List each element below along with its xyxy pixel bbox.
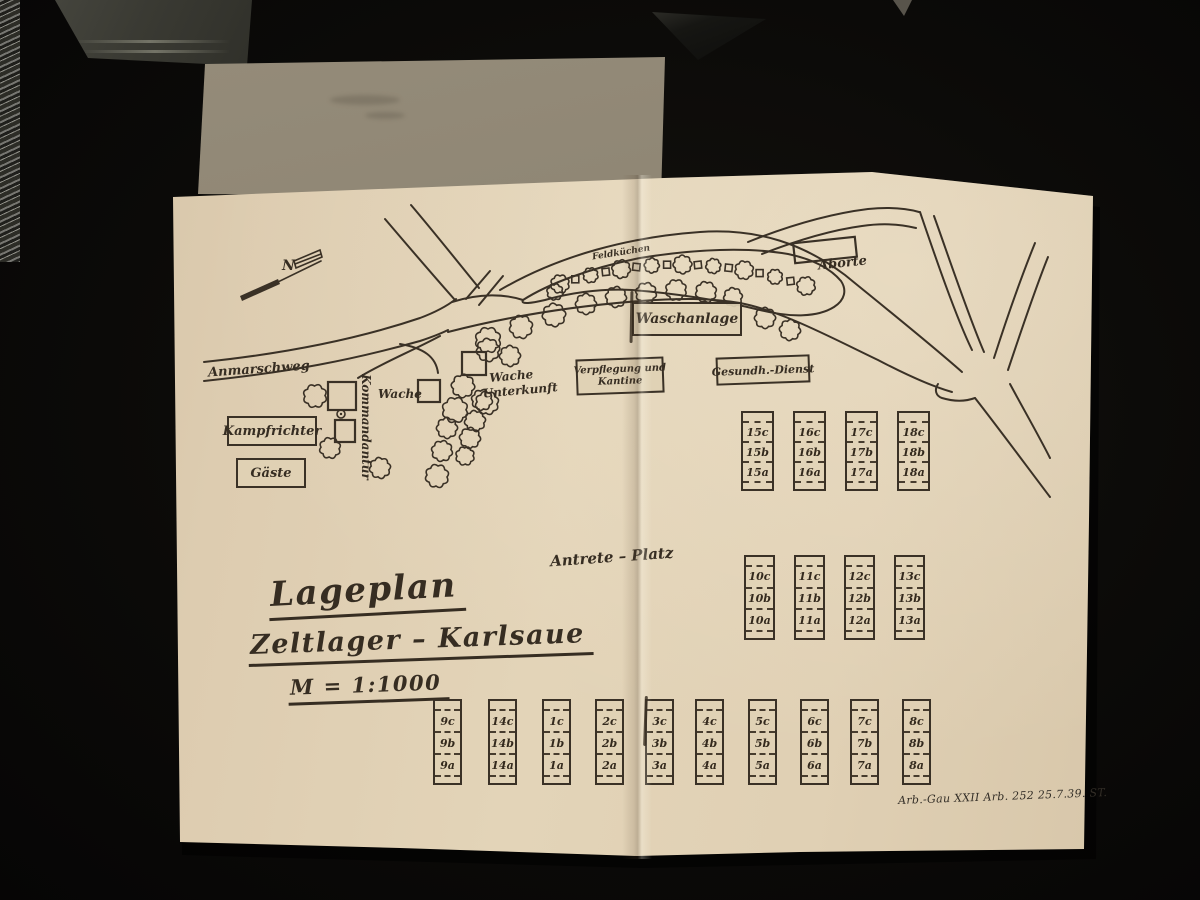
tree-icon bbox=[673, 255, 692, 274]
tree-icon bbox=[320, 438, 341, 459]
tent-cell-divider bbox=[490, 775, 515, 783]
tent-cell: 1c bbox=[544, 709, 569, 731]
tent-cell-divider bbox=[852, 775, 877, 783]
gesundheitsdienst-box: Gesundh.-Dienst bbox=[716, 354, 811, 385]
tent-cell: 10a bbox=[746, 608, 773, 630]
tree-icon bbox=[797, 277, 815, 295]
tent-column: 18c18b18a bbox=[897, 411, 930, 491]
tent-cell: 1b bbox=[544, 731, 569, 753]
tent-cell-divider bbox=[795, 481, 824, 489]
tent-cell: 2c bbox=[597, 709, 622, 731]
verpflegung-line2: Kantine bbox=[598, 375, 643, 389]
tent-cell-divider bbox=[746, 630, 773, 638]
tent-cell: 7b bbox=[852, 731, 877, 753]
wache-unterkunft-building bbox=[462, 352, 486, 375]
tent-cell: 11c bbox=[796, 565, 823, 587]
tree-icon bbox=[768, 270, 783, 285]
tent-cell: 12c bbox=[846, 565, 873, 587]
field-kitchen-icon bbox=[787, 277, 795, 285]
tent-column: 3c3b3a bbox=[645, 699, 674, 785]
road bbox=[1008, 257, 1048, 370]
tent-cell: 10c bbox=[746, 565, 773, 587]
tent-cell: 15b bbox=[743, 441, 772, 461]
tree-icon bbox=[432, 441, 453, 462]
tent-cell: 15a bbox=[743, 461, 772, 481]
tree-icon bbox=[644, 258, 659, 273]
tent-cell: 9c bbox=[435, 709, 460, 731]
tent-cell-divider bbox=[750, 775, 775, 783]
tent-cell: 3c bbox=[647, 709, 672, 731]
road bbox=[936, 384, 975, 401]
tree-icon bbox=[456, 447, 474, 465]
plan-scale-text: M = 1:1000 bbox=[288, 669, 450, 706]
tree-icon bbox=[735, 261, 753, 279]
tree-icon bbox=[575, 293, 596, 314]
tent-cell: 2a bbox=[597, 753, 622, 775]
tent-cell: 11a bbox=[796, 608, 823, 630]
road bbox=[1010, 384, 1050, 458]
tent-cell: 11b bbox=[796, 587, 823, 609]
tent-column: 4c4b4a bbox=[695, 699, 724, 785]
tree-icon bbox=[666, 280, 686, 300]
field-kitchen-icon bbox=[756, 270, 763, 277]
tent-cell: 18a bbox=[899, 461, 928, 481]
tent-cell: 14c bbox=[490, 709, 515, 731]
wache-unterkunft-label: Wache Unterkunft bbox=[489, 365, 559, 401]
tent-column: 8c8b8a bbox=[902, 699, 931, 785]
tent-cell-divider bbox=[899, 481, 928, 489]
tent-cell: 10b bbox=[746, 587, 773, 609]
verpflegung-kantine-box: Verpflegung und Kantine bbox=[575, 356, 664, 395]
tent-cell: 2b bbox=[597, 731, 622, 753]
tree-icon bbox=[476, 338, 499, 361]
tent-column: 16c16b16a bbox=[793, 411, 826, 491]
tent-column: 9c9b9a bbox=[433, 699, 462, 785]
tent-cell: 8c bbox=[904, 709, 929, 731]
tent-cell: 5a bbox=[750, 753, 775, 775]
tree-icon bbox=[499, 345, 520, 366]
kommandantur-annex-building bbox=[335, 420, 355, 442]
north-label: N bbox=[282, 258, 295, 274]
road bbox=[994, 243, 1035, 358]
tree-icon bbox=[304, 385, 327, 408]
tent-cell: 9a bbox=[435, 753, 460, 775]
waschanlage-box: Waschanlage bbox=[632, 302, 742, 336]
wache-label: Wache bbox=[378, 387, 422, 401]
tent-column: 6c6b6a bbox=[800, 699, 829, 785]
tree-icon bbox=[443, 398, 468, 423]
tent-cell-divider bbox=[802, 775, 827, 783]
field-kitchen-icon bbox=[694, 261, 702, 269]
tent-cell-divider bbox=[435, 775, 460, 783]
tent-cell: 18b bbox=[899, 441, 928, 461]
tent-column: 7c7b7a bbox=[850, 699, 879, 785]
tent-cell-divider bbox=[896, 630, 923, 638]
tent-cell: 9b bbox=[435, 731, 460, 753]
tent-column: 12c12b12a bbox=[844, 555, 875, 640]
tent-cell: 7c bbox=[852, 709, 877, 731]
kampfrichter-box: Kampfrichter bbox=[227, 416, 317, 446]
road bbox=[411, 205, 479, 288]
tent-cell: 3b bbox=[647, 731, 672, 753]
tent-cell: 17a bbox=[847, 461, 876, 481]
tent-cell: 17c bbox=[847, 421, 876, 441]
tent-cell: 7a bbox=[852, 753, 877, 775]
road bbox=[975, 398, 1050, 497]
plan-scale: M = 1:1000 bbox=[288, 669, 450, 700]
tent-cell: 15c bbox=[743, 421, 772, 441]
tent-column: 2c2b2a bbox=[595, 699, 624, 785]
tent-cell: 8b bbox=[904, 731, 929, 753]
tent-cell: 13a bbox=[896, 608, 923, 630]
tent-cell: 6b bbox=[802, 731, 827, 753]
tent-cell: 4c bbox=[697, 709, 722, 731]
tent-column: 13c13b13a bbox=[894, 555, 925, 640]
tent-cell: 13b bbox=[896, 587, 923, 609]
tent-cell: 12a bbox=[846, 608, 873, 630]
tent-cell: 14a bbox=[490, 753, 515, 775]
tent-cell-divider bbox=[647, 775, 672, 783]
tent-cell: 5c bbox=[750, 709, 775, 731]
tree-icon bbox=[706, 258, 721, 273]
road bbox=[385, 219, 455, 300]
photograph-of-site-plan: N Anmarschweg Kampfrichter Gäste Kommand… bbox=[0, 0, 1200, 900]
kommandantur-building bbox=[328, 382, 356, 410]
tent-cell: 16a bbox=[795, 461, 824, 481]
tent-cell: 12b bbox=[846, 587, 873, 609]
tent-column: 14c14b14a bbox=[488, 699, 517, 785]
field-kitchen-icon bbox=[602, 268, 610, 276]
tent-cell: 3a bbox=[647, 753, 672, 775]
tent-cell-divider bbox=[597, 775, 622, 783]
tent-cell-divider bbox=[847, 481, 876, 489]
tent-cell: 4a bbox=[697, 753, 722, 775]
tent-cell-divider bbox=[904, 775, 929, 783]
tent-cell-divider bbox=[743, 481, 772, 489]
tent-cell: 16b bbox=[795, 441, 824, 461]
tent-cell: 6a bbox=[802, 753, 827, 775]
tent-column: 1c1b1a bbox=[542, 699, 571, 785]
gaeste-box: Gäste bbox=[236, 458, 306, 488]
tent-cell: 13c bbox=[896, 565, 923, 587]
lane bbox=[400, 344, 438, 373]
north-arrow-icon bbox=[240, 250, 322, 301]
tent-cell-divider bbox=[544, 775, 569, 783]
tent-column: 10c10b10a bbox=[744, 555, 775, 640]
tent-cell: 6c bbox=[802, 709, 827, 731]
tent-column: 5c5b5a bbox=[748, 699, 777, 785]
tree-icon bbox=[779, 319, 800, 340]
tent-column: 15c15b15a bbox=[741, 411, 774, 491]
tree-icon bbox=[451, 374, 475, 398]
tent-cell: 16c bbox=[795, 421, 824, 441]
road bbox=[920, 212, 972, 350]
road bbox=[452, 295, 523, 302]
tent-cell: 8a bbox=[904, 753, 929, 775]
field-kitchen-icon bbox=[725, 264, 733, 272]
tent-cell: 4b bbox=[697, 731, 722, 753]
tent-cell: 14b bbox=[490, 731, 515, 753]
tent-cell-divider bbox=[697, 775, 722, 783]
tent-column: 11c11b11a bbox=[794, 555, 825, 640]
tent-cell: 5b bbox=[750, 731, 775, 753]
tent-cell: 1a bbox=[544, 753, 569, 775]
marker-icon-dot bbox=[340, 413, 342, 415]
tree-icon bbox=[542, 303, 566, 327]
tree-icon bbox=[425, 464, 448, 487]
kommandantur-label: Kommandantur bbox=[359, 367, 373, 487]
tent-column: 17c17b17a bbox=[845, 411, 878, 491]
tree-icon bbox=[509, 315, 532, 338]
tree-icon bbox=[436, 417, 457, 438]
field-kitchen-icon bbox=[633, 263, 641, 271]
tent-cell: 17b bbox=[847, 441, 876, 461]
road bbox=[204, 299, 456, 362]
tent-cell-divider bbox=[796, 630, 823, 638]
tent-cell-divider bbox=[846, 630, 873, 638]
road bbox=[934, 216, 984, 352]
tent-cell: 18c bbox=[899, 421, 928, 441]
tree-icon bbox=[476, 328, 501, 353]
field-kitchen-icon bbox=[664, 261, 671, 268]
